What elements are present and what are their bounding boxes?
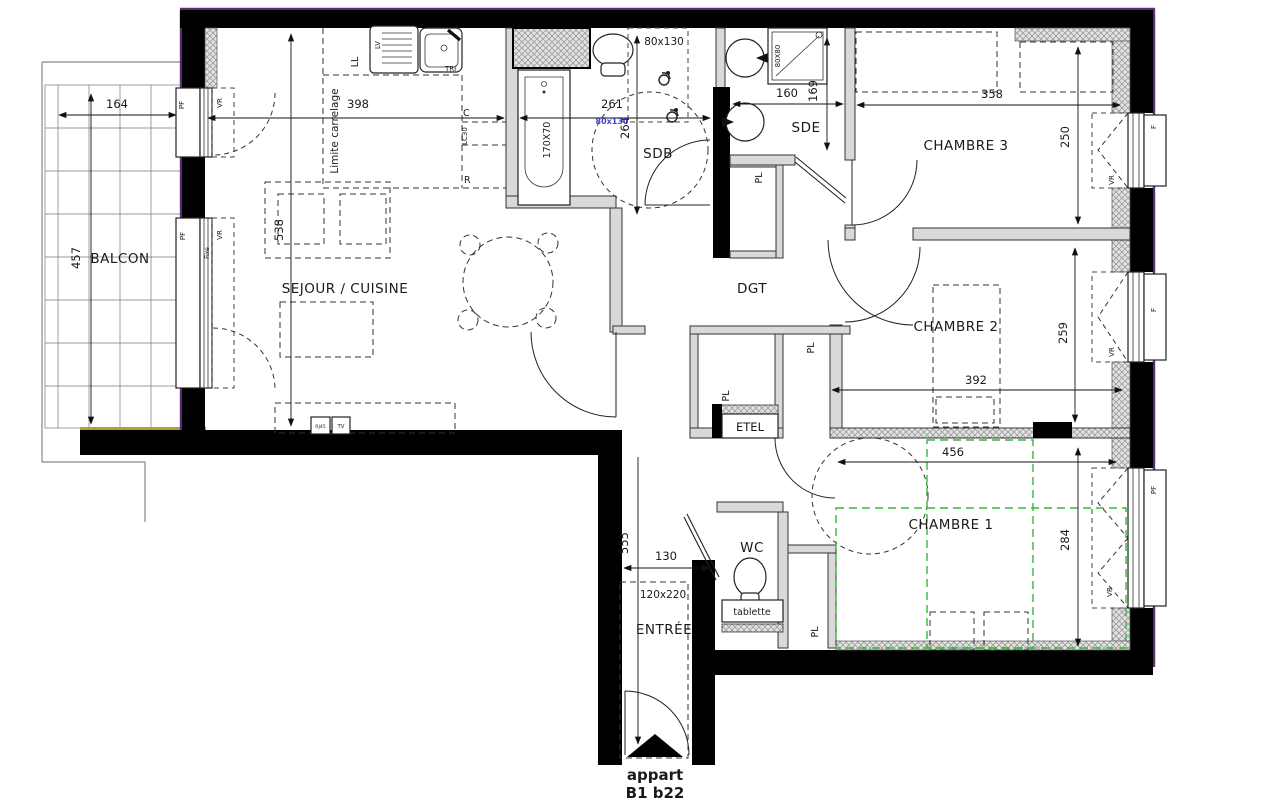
window-pf-label: PF [1150, 486, 1158, 494]
window-pf-label: PF [179, 232, 187, 240]
room-label-chambre3: CHAMBRE 3 [923, 138, 1008, 154]
dim-sdb-door: 80x130 [644, 36, 684, 48]
sofa [280, 302, 373, 357]
cooker-label: C [463, 108, 470, 119]
dim-chambre3-width: 358 [981, 87, 1003, 101]
window-vr-label: VR [216, 98, 224, 108]
dim-entree-depth: 555 [617, 532, 631, 554]
placard-label: PL [806, 342, 817, 354]
dim-sejour-depth: 538 [272, 219, 286, 241]
window-f-label: F [1150, 308, 1158, 312]
dim-sdb-width: 261 [601, 97, 623, 111]
room-label-wc: WC [740, 540, 764, 556]
bed-chambre2 [933, 285, 1000, 427]
placard-label: PL [810, 626, 821, 638]
dim-balcony-depth: 457 [69, 247, 83, 269]
room-label-balcon: BALCON [90, 251, 149, 267]
wc-fixtures: tablette [722, 558, 783, 622]
entry-door-zone [620, 582, 688, 758]
room-label-sde: SDE [792, 120, 821, 136]
dim-chambre2-depth: 259 [1056, 322, 1070, 344]
rj45-label: RJ45 [315, 424, 325, 430]
room-label-chambre2: CHAMBRE 2 [913, 319, 998, 335]
wheelchair-icon [667, 108, 678, 122]
room-label-sejour: SEJOUR / CUISINE [282, 281, 409, 297]
window-balcony-door: PF VR [176, 88, 275, 157]
dim-chambre1-width: 456 [942, 445, 964, 459]
dim-entree-width: 130 [655, 549, 677, 563]
floor-plan-drawing: PF VR PF Fixe VR F VR F VR PF VR [0, 0, 1281, 800]
dim-entry-door: 120x220 [640, 589, 686, 601]
dim-balcony-width: 164 [106, 97, 128, 111]
tv-label: TV [337, 424, 345, 430]
dim-kitchen-width: 398 [347, 97, 369, 111]
room-label-dgt: DGT [737, 281, 767, 297]
etel-label: ETEL [736, 420, 765, 434]
entry-marker: appart B1 b22 [626, 734, 685, 800]
apartment-label-line1: appart [627, 766, 683, 784]
dishwasher-label: LV [374, 41, 382, 49]
toilet-sdb-icon [593, 34, 633, 66]
dining-table [463, 237, 553, 327]
dim-chambre1-depth: 284 [1058, 529, 1072, 551]
fridge-label: R [464, 175, 471, 186]
shower-label: 80X80 [774, 45, 782, 68]
entry-triangle-icon [627, 734, 683, 757]
room-label-chambre1: CHAMBRE 1 [908, 517, 993, 533]
etel-closet: ETEL [722, 414, 778, 438]
window-vr-label: VR [1108, 175, 1116, 185]
window-vr-label: VR [1106, 587, 1114, 597]
tv-cabinet [275, 403, 455, 433]
window-chambre3: F VR [1092, 113, 1166, 188]
room-label-sdb: SDB [643, 146, 673, 162]
window-fixe-label: Fixe [204, 247, 211, 259]
dim-sde-depth: 169 [806, 80, 820, 102]
window-chambre2: F VR [1092, 272, 1166, 362]
window-vr-label: VR [1108, 347, 1116, 357]
tablette-label: tablette [733, 607, 771, 618]
sde-door-leaf [795, 157, 846, 203]
shower-room-sde: 80X80 [726, 28, 827, 84]
wheelchair-icon [659, 71, 670, 85]
bathtub-label: 170X70 [542, 122, 553, 159]
toilet-wc-icon [734, 558, 766, 596]
window-chambre1: PF VR [1092, 468, 1166, 608]
placard-label: PL [721, 390, 732, 402]
dim-sde-width: 160 [776, 86, 798, 100]
dim-chambre2-width: 392 [965, 373, 987, 387]
bed-chambre3 [856, 32, 997, 92]
window-vr-label: VR [216, 230, 224, 240]
technical-duct [513, 28, 590, 68]
lc30-label: LC30 [461, 127, 469, 145]
tri-label: TRI [444, 65, 456, 73]
dim-chambre3-depth: 250 [1058, 126, 1072, 148]
room-label-entree: ENTRÉE [636, 621, 692, 638]
placard-label: PL [754, 172, 765, 184]
limite-carrelage-label: Limite carrelage [329, 88, 341, 173]
apartment-label-line2: B1 b22 [626, 784, 685, 800]
washer-label: LL [350, 56, 361, 67]
dim-sdb-door-blue: 80x130 [596, 117, 629, 126]
floor-plan-page: PF VR PF Fixe VR F VR F VR PF VR [0, 0, 1281, 800]
accessible-zone [927, 440, 1033, 648]
window-balcony-fixed: PF Fixe VR [176, 218, 275, 390]
window-pf-label: PF [178, 101, 186, 109]
accessibility-circle [812, 438, 928, 554]
window-f-label: F [1150, 125, 1158, 129]
